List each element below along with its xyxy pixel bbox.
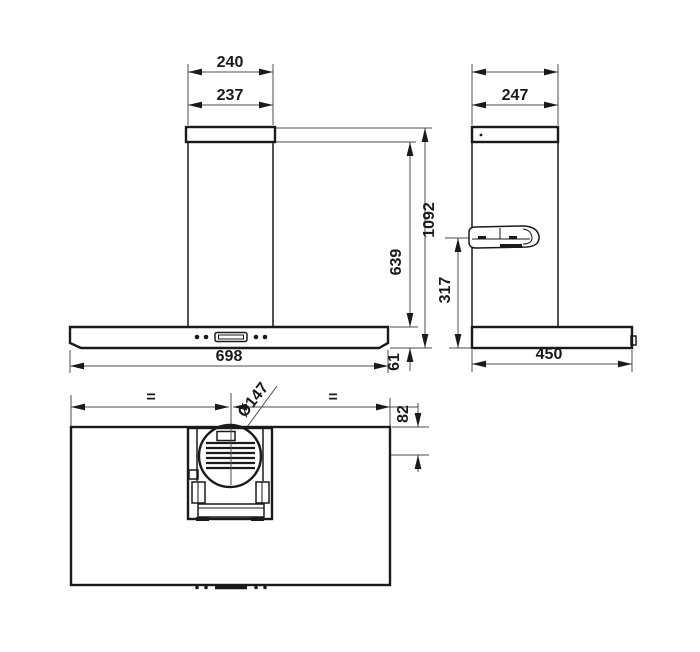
cooker-hood-drawing: 240 237 1092 639 61 698 <box>0 0 700 652</box>
control-button-dot <box>204 586 208 590</box>
dim-label-chimney-top-outer: 240 <box>217 54 244 71</box>
hood-rear-tab <box>631 336 636 345</box>
top-view: = = Ø147 82 <box>71 379 429 589</box>
control-button-dot <box>195 586 199 590</box>
hood-body-front <box>70 327 388 348</box>
front-edge-controls-topview <box>195 586 267 590</box>
housing-foot <box>251 517 264 521</box>
dim-label-duct-offset: 82 <box>395 405 412 423</box>
technical-drawing-page: 240 237 1092 639 61 698 <box>0 0 700 652</box>
control-button-dot <box>263 335 268 340</box>
mounting-bracket-side <box>469 226 539 248</box>
dim-label-total-height: 1092 <box>421 202 438 238</box>
dim-label-chimney-depth: 247 <box>502 87 529 104</box>
front-view: 240 237 1092 639 61 698 <box>70 54 438 373</box>
dim-label-equal-right: = <box>328 389 337 406</box>
control-button-dot <box>254 335 259 340</box>
control-button-dot <box>195 335 200 340</box>
control-button-dot <box>254 586 258 590</box>
chimney-cap-front <box>186 127 275 142</box>
housing-foot <box>196 517 209 521</box>
dim-label-chimney-top-inner: 237 <box>217 87 244 104</box>
hood-body-side <box>472 327 632 348</box>
side-view: 247 317 450 <box>437 64 636 372</box>
motor-housing-frame <box>188 428 272 519</box>
chimney-body-front <box>188 142 273 327</box>
dim-label-chimney-height: 639 <box>388 249 405 276</box>
motor-housing <box>188 425 272 521</box>
dim-label-equal-left: = <box>146 389 155 406</box>
control-button-dot <box>263 586 267 590</box>
dim-label-bracket-height: 317 <box>437 277 454 304</box>
bracket-base-bar <box>500 244 522 248</box>
control-button-dot <box>204 335 209 340</box>
dim-label-body-width: 698 <box>216 348 243 365</box>
chimney-cap-side <box>472 127 558 142</box>
extension-lines-side <box>445 64 632 372</box>
cap-screw-dot <box>480 134 483 137</box>
dim-label-body-height: 61 <box>386 353 403 371</box>
bracket-foot <box>509 236 517 240</box>
bracket-foot <box>478 236 486 240</box>
